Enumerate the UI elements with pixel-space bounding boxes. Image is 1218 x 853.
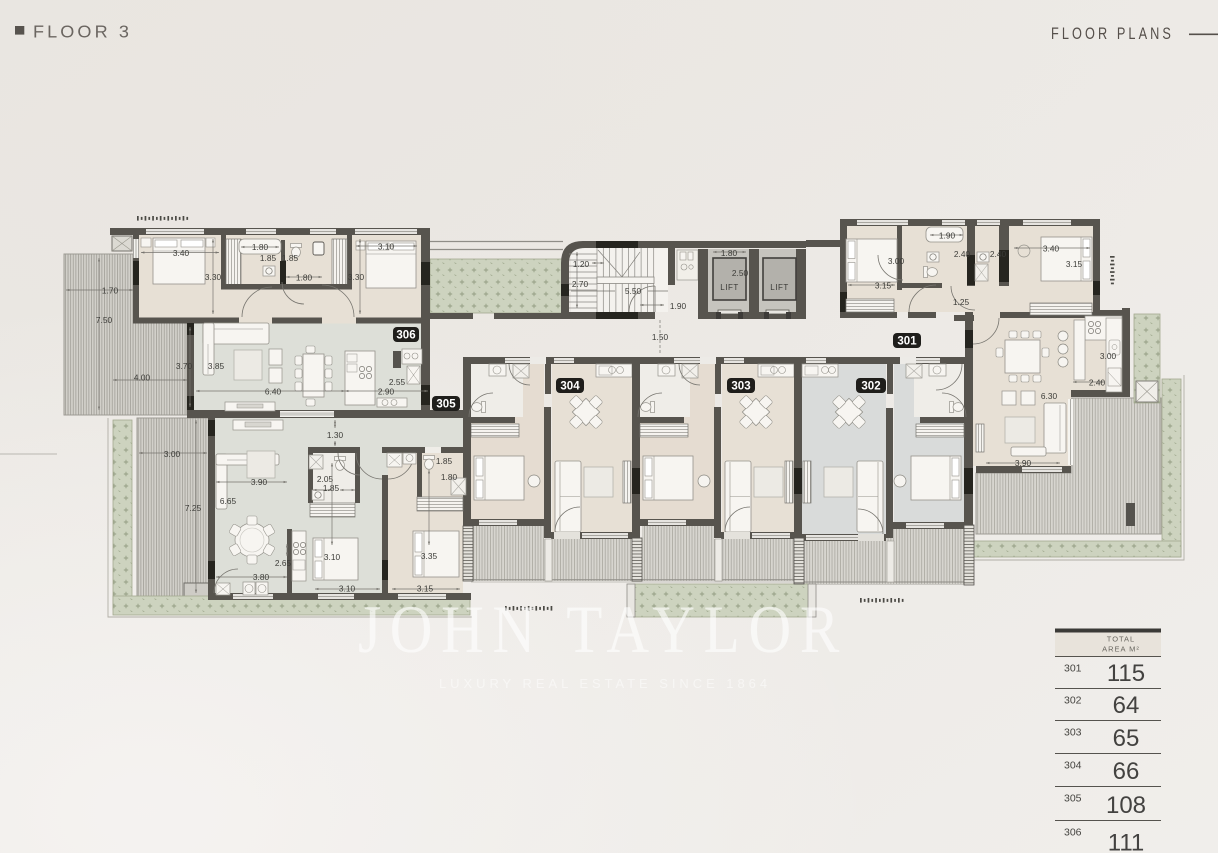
svg-text:5.50: 5.50: [625, 286, 642, 296]
svg-text:3.15: 3.15: [1066, 259, 1083, 269]
svg-text:3.10: 3.10: [339, 584, 356, 594]
svg-text:1.85: 1.85: [323, 483, 340, 493]
svg-text:306: 306: [1064, 827, 1082, 839]
svg-text:3.40: 3.40: [1043, 244, 1060, 254]
svg-text:2.65: 2.65: [275, 558, 292, 568]
svg-text:303: 303: [1064, 727, 1082, 739]
svg-text:3.40: 3.40: [173, 248, 190, 258]
svg-text:108: 108: [1106, 792, 1146, 819]
svg-text:3.30: 3.30: [348, 272, 365, 282]
svg-text:1.85: 1.85: [436, 456, 453, 466]
svg-text:1.80: 1.80: [296, 273, 313, 283]
svg-text:302: 302: [1064, 695, 1082, 707]
svg-text:305: 305: [1064, 793, 1082, 805]
svg-text:304: 304: [560, 381, 580, 393]
svg-text:3.00: 3.00: [888, 256, 905, 266]
svg-text:JOHN TAYLOR: JOHN TAYLOR: [358, 591, 848, 667]
svg-text:303: 303: [731, 381, 750, 393]
svg-text:3.10: 3.10: [324, 552, 341, 562]
svg-text:3.35: 3.35: [421, 551, 438, 561]
svg-text:301: 301: [897, 336, 917, 348]
svg-text:7.50: 7.50: [96, 315, 113, 325]
svg-text:64: 64: [1113, 692, 1140, 719]
svg-text:302: 302: [861, 381, 880, 393]
svg-text:1.80: 1.80: [252, 242, 269, 252]
svg-text:3.70: 3.70: [176, 361, 193, 371]
svg-text:65: 65: [1113, 725, 1140, 752]
svg-text:3.15: 3.15: [875, 281, 892, 291]
svg-text:2.90: 2.90: [378, 387, 395, 397]
svg-text:2.50: 2.50: [732, 268, 749, 278]
svg-text:1.70: 1.70: [102, 286, 119, 296]
svg-text:1.80: 1.80: [441, 472, 458, 482]
svg-text:1.80: 1.80: [721, 248, 738, 258]
svg-text:TOTAL: TOTAL: [1107, 635, 1135, 644]
svg-text:2.40: 2.40: [954, 249, 971, 259]
svg-text:3.90: 3.90: [251, 477, 268, 487]
svg-text:1.30: 1.30: [327, 430, 344, 440]
svg-text:1.20: 1.20: [573, 259, 590, 269]
svg-text:6.40: 6.40: [265, 387, 282, 397]
svg-text:3.30: 3.30: [205, 272, 222, 282]
svg-text:1.90: 1.90: [670, 301, 687, 311]
svg-text:1.90: 1.90: [939, 231, 956, 241]
svg-text:LUXURY REAL ESTATE SINCE 1864: LUXURY REAL ESTATE SINCE 1864: [439, 676, 771, 691]
svg-text:3.00: 3.00: [164, 449, 181, 459]
svg-text:1.25: 1.25: [953, 297, 970, 307]
svg-text:2.40: 2.40: [990, 249, 1007, 259]
svg-text:301: 301: [1064, 663, 1082, 675]
svg-text:FLOOR 3: FLOOR 3: [33, 22, 132, 42]
svg-text:306: 306: [396, 330, 415, 342]
svg-text:3.10: 3.10: [378, 242, 395, 252]
svg-text:66: 66: [1113, 758, 1140, 785]
svg-text:LIFT: LIFT: [720, 283, 738, 292]
svg-text:111: 111: [1108, 830, 1144, 853]
svg-text:3.85: 3.85: [208, 361, 225, 371]
svg-text:3.80: 3.80: [253, 572, 270, 582]
svg-text:305: 305: [436, 399, 456, 411]
svg-text:304: 304: [1064, 760, 1082, 772]
svg-text:6.65: 6.65: [220, 496, 237, 506]
svg-text:1.85: 1.85: [260, 253, 277, 263]
svg-text:AREA M²: AREA M²: [1102, 645, 1140, 654]
svg-text:4.00: 4.00: [134, 373, 151, 383]
svg-text:3.90: 3.90: [1015, 458, 1032, 468]
svg-text:1.85: 1.85: [282, 253, 299, 263]
svg-text:2.70: 2.70: [572, 279, 589, 289]
svg-text:FLOOR PLANS: FLOOR PLANS: [1051, 25, 1174, 43]
svg-text:LIFT: LIFT: [770, 283, 788, 292]
svg-text:7.25: 7.25: [185, 503, 202, 513]
svg-text:2.40: 2.40: [1089, 378, 1106, 388]
svg-text:3.00: 3.00: [1100, 351, 1117, 361]
svg-text:2.55: 2.55: [389, 377, 406, 387]
svg-text:115: 115: [1107, 660, 1145, 687]
svg-text:6.30: 6.30: [1041, 391, 1058, 401]
